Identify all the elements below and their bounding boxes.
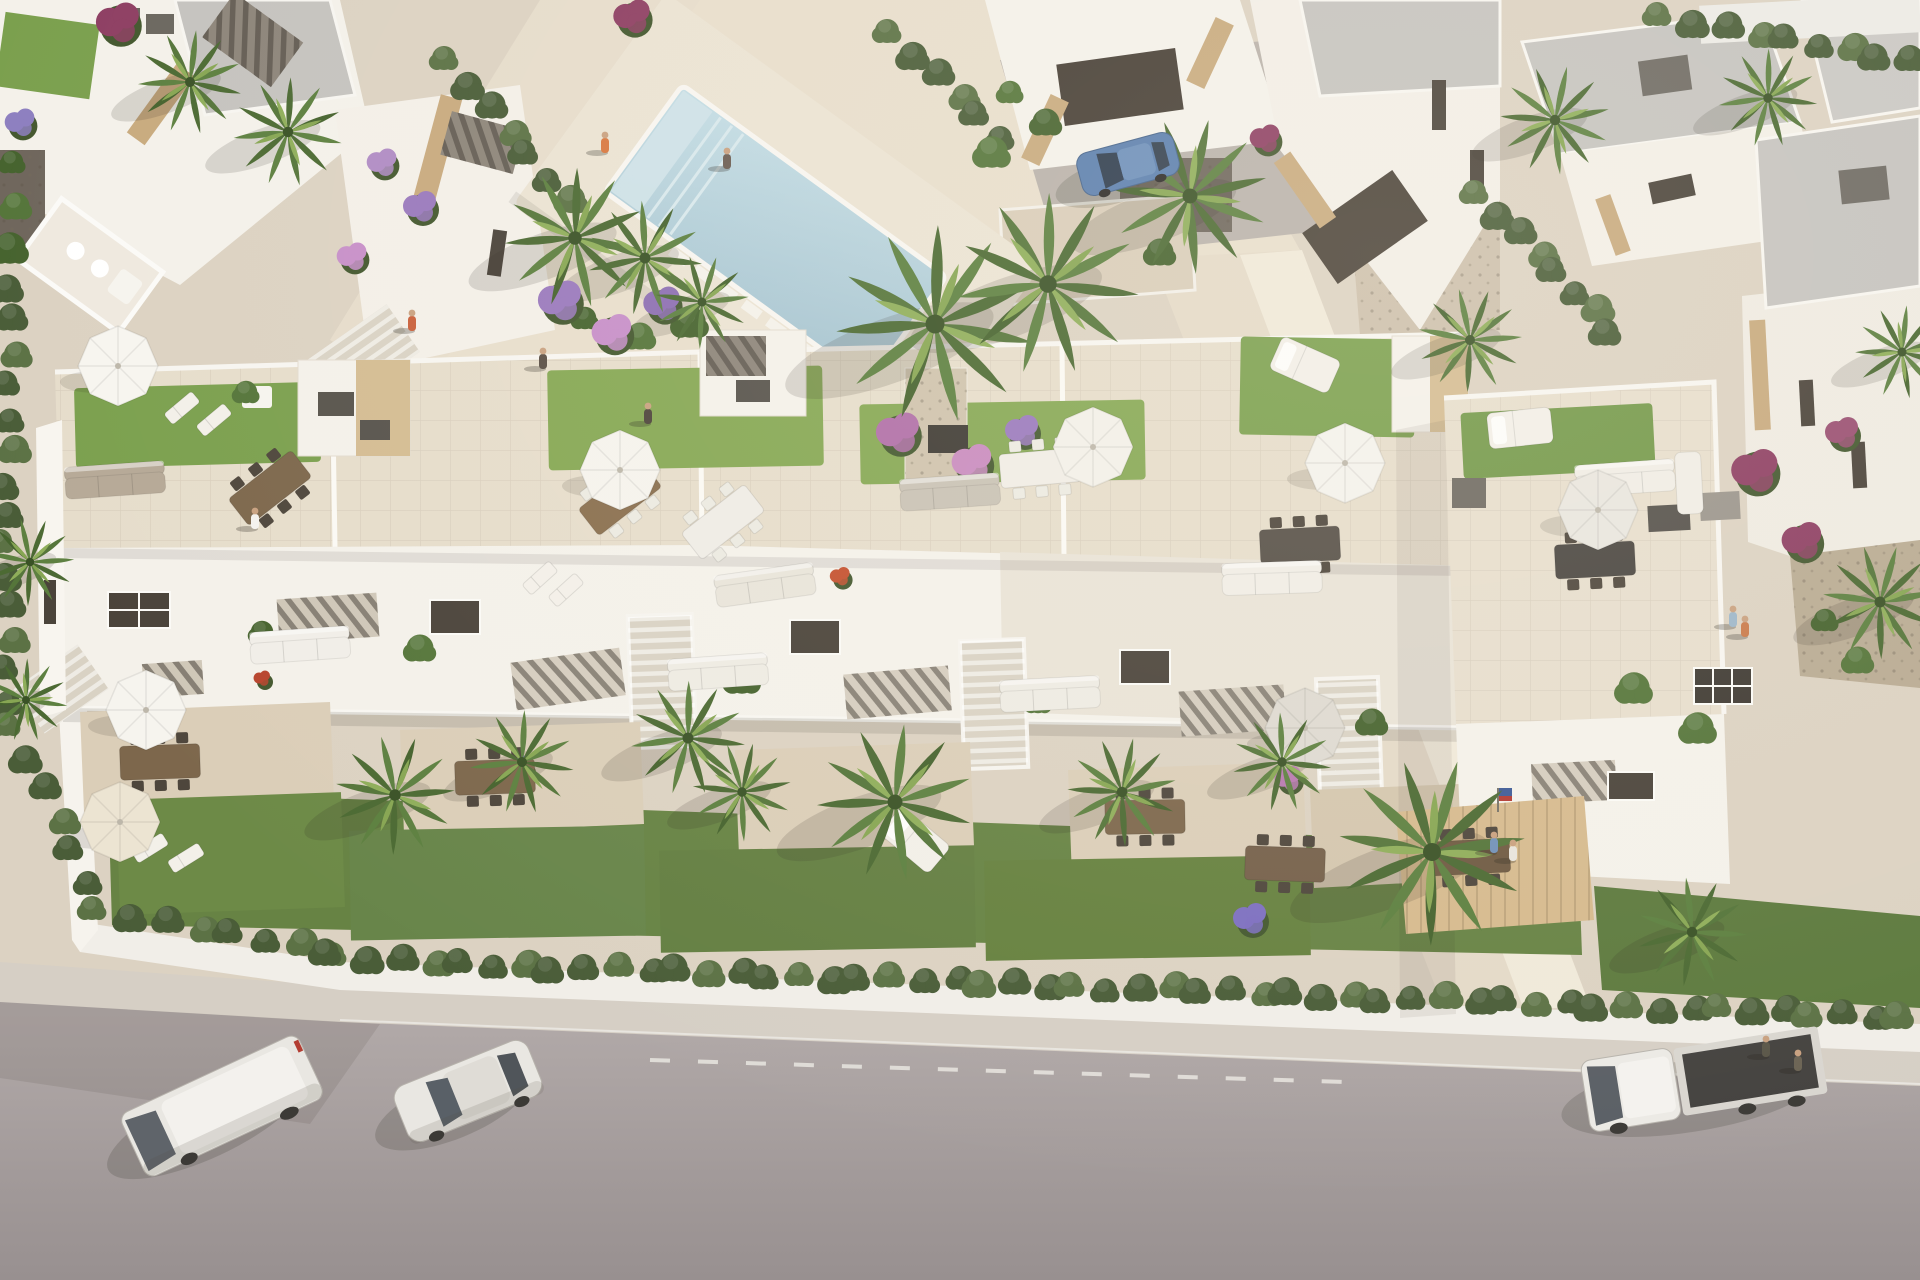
sun-glow [0,0,1920,1280]
render-viewport [0,0,1920,1280]
aerial-render [0,0,1920,1280]
